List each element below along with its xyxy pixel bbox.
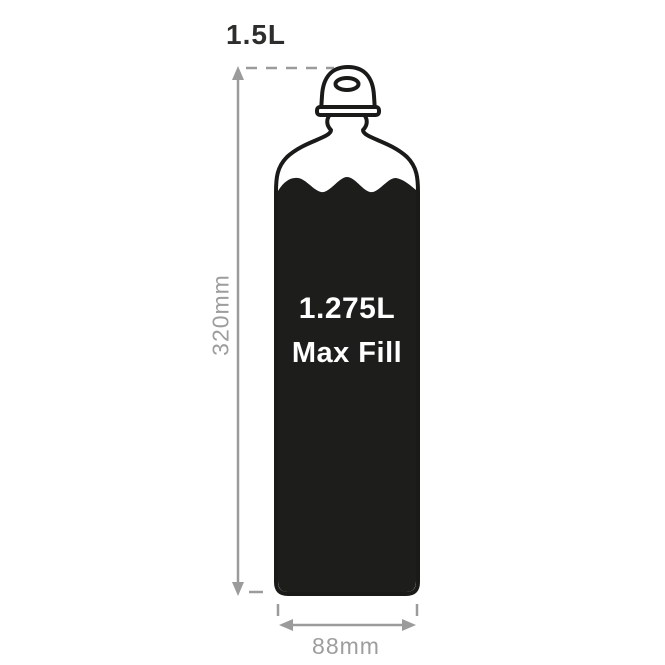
capacity-label: 1.5L: [226, 19, 286, 51]
height-dimension-label: 320mm: [208, 274, 235, 356]
arrowhead-up-icon: [232, 66, 244, 80]
bottle-water-fill: [278, 177, 416, 592]
arrowhead-left-icon: [279, 619, 293, 631]
cap-flange: [317, 107, 379, 115]
max-fill-text-label: Max Fill: [292, 337, 402, 370]
arrowhead-down-icon: [232, 582, 244, 596]
width-dimension-label: 88mm: [312, 633, 380, 660]
max-fill-volume-label: 1.275L: [299, 292, 395, 326]
product-dimension-diagram: 1.5L 320mm 88mm 1.275L Max Fill: [0, 0, 665, 665]
bottle-illustration: [276, 67, 418, 594]
diagram-canvas: [0, 0, 665, 665]
arrowhead-right-icon: [402, 619, 416, 631]
width-dimension: [278, 604, 417, 631]
cap-loop-hole-icon: [336, 78, 359, 90]
